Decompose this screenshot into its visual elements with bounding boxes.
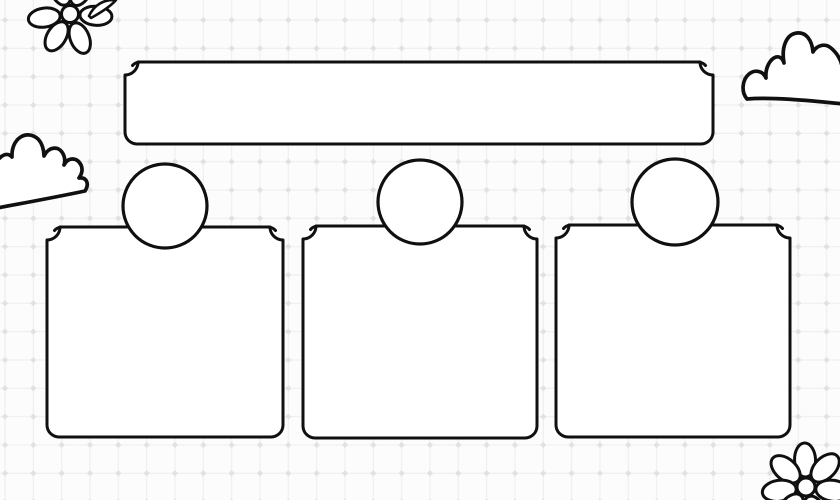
content-box-2[interactable] bbox=[303, 226, 537, 438]
badge-circle-3[interactable] bbox=[632, 159, 718, 245]
content-box-1-outline bbox=[47, 227, 283, 437]
badge-circle-2[interactable] bbox=[378, 160, 462, 244]
content-box-1[interactable] bbox=[47, 227, 283, 437]
title-banner-frame-outline bbox=[125, 62, 713, 144]
content-box-2-outline bbox=[303, 226, 537, 438]
content-box-3-outline bbox=[556, 225, 790, 437]
template-scene bbox=[0, 0, 840, 500]
title-banner-frame[interactable] bbox=[125, 62, 713, 144]
content-box-3[interactable] bbox=[556, 225, 790, 437]
badge-circle-1[interactable] bbox=[123, 164, 207, 248]
flower-doodle-bottom-right-center bbox=[797, 478, 815, 496]
whiteboard-template-canvas bbox=[0, 0, 840, 500]
flower-doodle-top-left-center bbox=[62, 6, 79, 23]
